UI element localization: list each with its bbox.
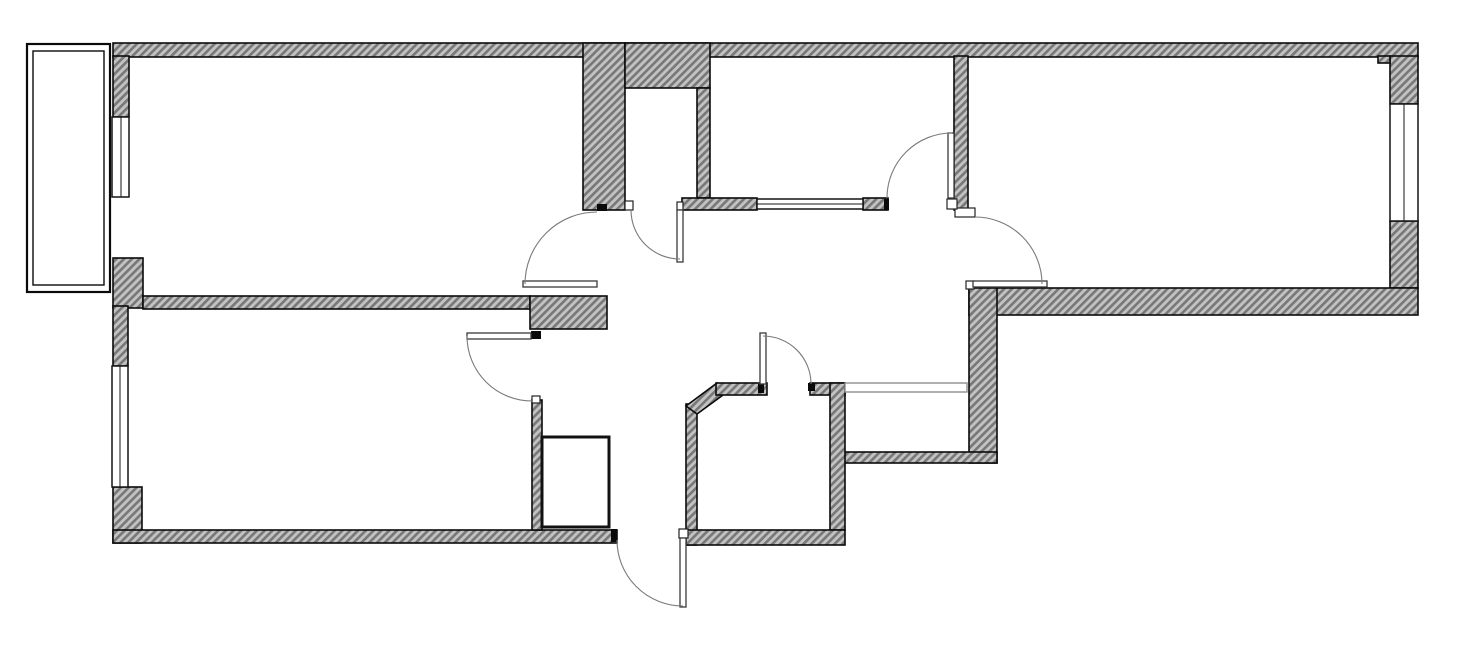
middleroom-right-wall	[954, 56, 968, 210]
door-leaf-middleroom	[948, 133, 954, 198]
door-leaf-closet	[677, 210, 683, 262]
bathroom-bottom-wall	[686, 530, 845, 545]
door-leaf-topleft-room	[523, 281, 597, 287]
left-exterior-wall-pier	[113, 258, 143, 308]
left-exterior-wall-upper	[113, 56, 129, 117]
right-exterior-wall-lower	[1390, 221, 1418, 288]
jamb-bathroom-door-right	[808, 383, 815, 391]
duct-shaft-front-partition	[845, 383, 967, 392]
right-exterior-wall-upper	[1390, 56, 1418, 104]
balcony-outer-parapet	[27, 44, 110, 292]
floor-plan-svg	[0, 0, 1459, 650]
jamb-entrance-left	[611, 529, 617, 542]
door-leaf-entrance	[680, 538, 686, 607]
balcony-inner-parapet	[33, 51, 104, 285]
bathroom-right-wall	[830, 383, 845, 530]
hinge-plate-closet-column	[625, 201, 633, 210]
jamb-middleroom-door	[884, 199, 889, 210]
hallway-right-wall	[969, 288, 997, 463]
jamb-bottomroom-door	[531, 331, 541, 339]
top-exterior-wall	[113, 43, 1418, 57]
jamb-topleft-door-head	[597, 204, 607, 211]
door-swing-closet	[631, 210, 680, 259]
closet-right-wall	[697, 88, 710, 198]
door-swing-topleft-room	[525, 212, 597, 284]
door-swing-bathroom	[763, 336, 811, 384]
right-room-bottom-wall	[969, 288, 1418, 315]
hall-cupboard	[542, 437, 609, 527]
hinge-plate-entrance-door	[679, 529, 688, 538]
door-leaf-bottomleft-room	[467, 333, 531, 339]
door-swing-rightroom	[975, 217, 1042, 284]
hinge-plate-rightroom-step	[955, 208, 975, 217]
jamb-bathroom-door-left	[758, 384, 764, 393]
door-leaf-rightroom	[973, 281, 1047, 287]
hinge-plate-closet-door	[677, 202, 683, 210]
floor-plan-canvas	[0, 0, 1459, 650]
closet-left-column	[583, 43, 625, 210]
duct-shaft-bottom-wall	[843, 452, 997, 463]
bottom-exterior-wall-left	[113, 530, 617, 543]
door-leaf-bathroom	[760, 333, 766, 384]
rightroom-corner-notch	[1378, 56, 1390, 63]
door-swing-bottomleft-room	[467, 336, 532, 401]
left-exterior-wall-mid	[113, 306, 128, 366]
bathroom-left-wall	[686, 404, 697, 545]
hall-doorway-pier	[530, 296, 607, 329]
hinge-plate-bottomroom-door	[532, 396, 540, 403]
closet-top-wall	[625, 43, 710, 88]
door-swing-middleroom	[887, 133, 952, 198]
rooms-divider-wall	[143, 296, 530, 309]
hinge-plate-middleroom-door	[947, 199, 957, 209]
middleroom-bottom-wall-left	[682, 198, 757, 210]
door-swing-entrance	[617, 540, 683, 606]
